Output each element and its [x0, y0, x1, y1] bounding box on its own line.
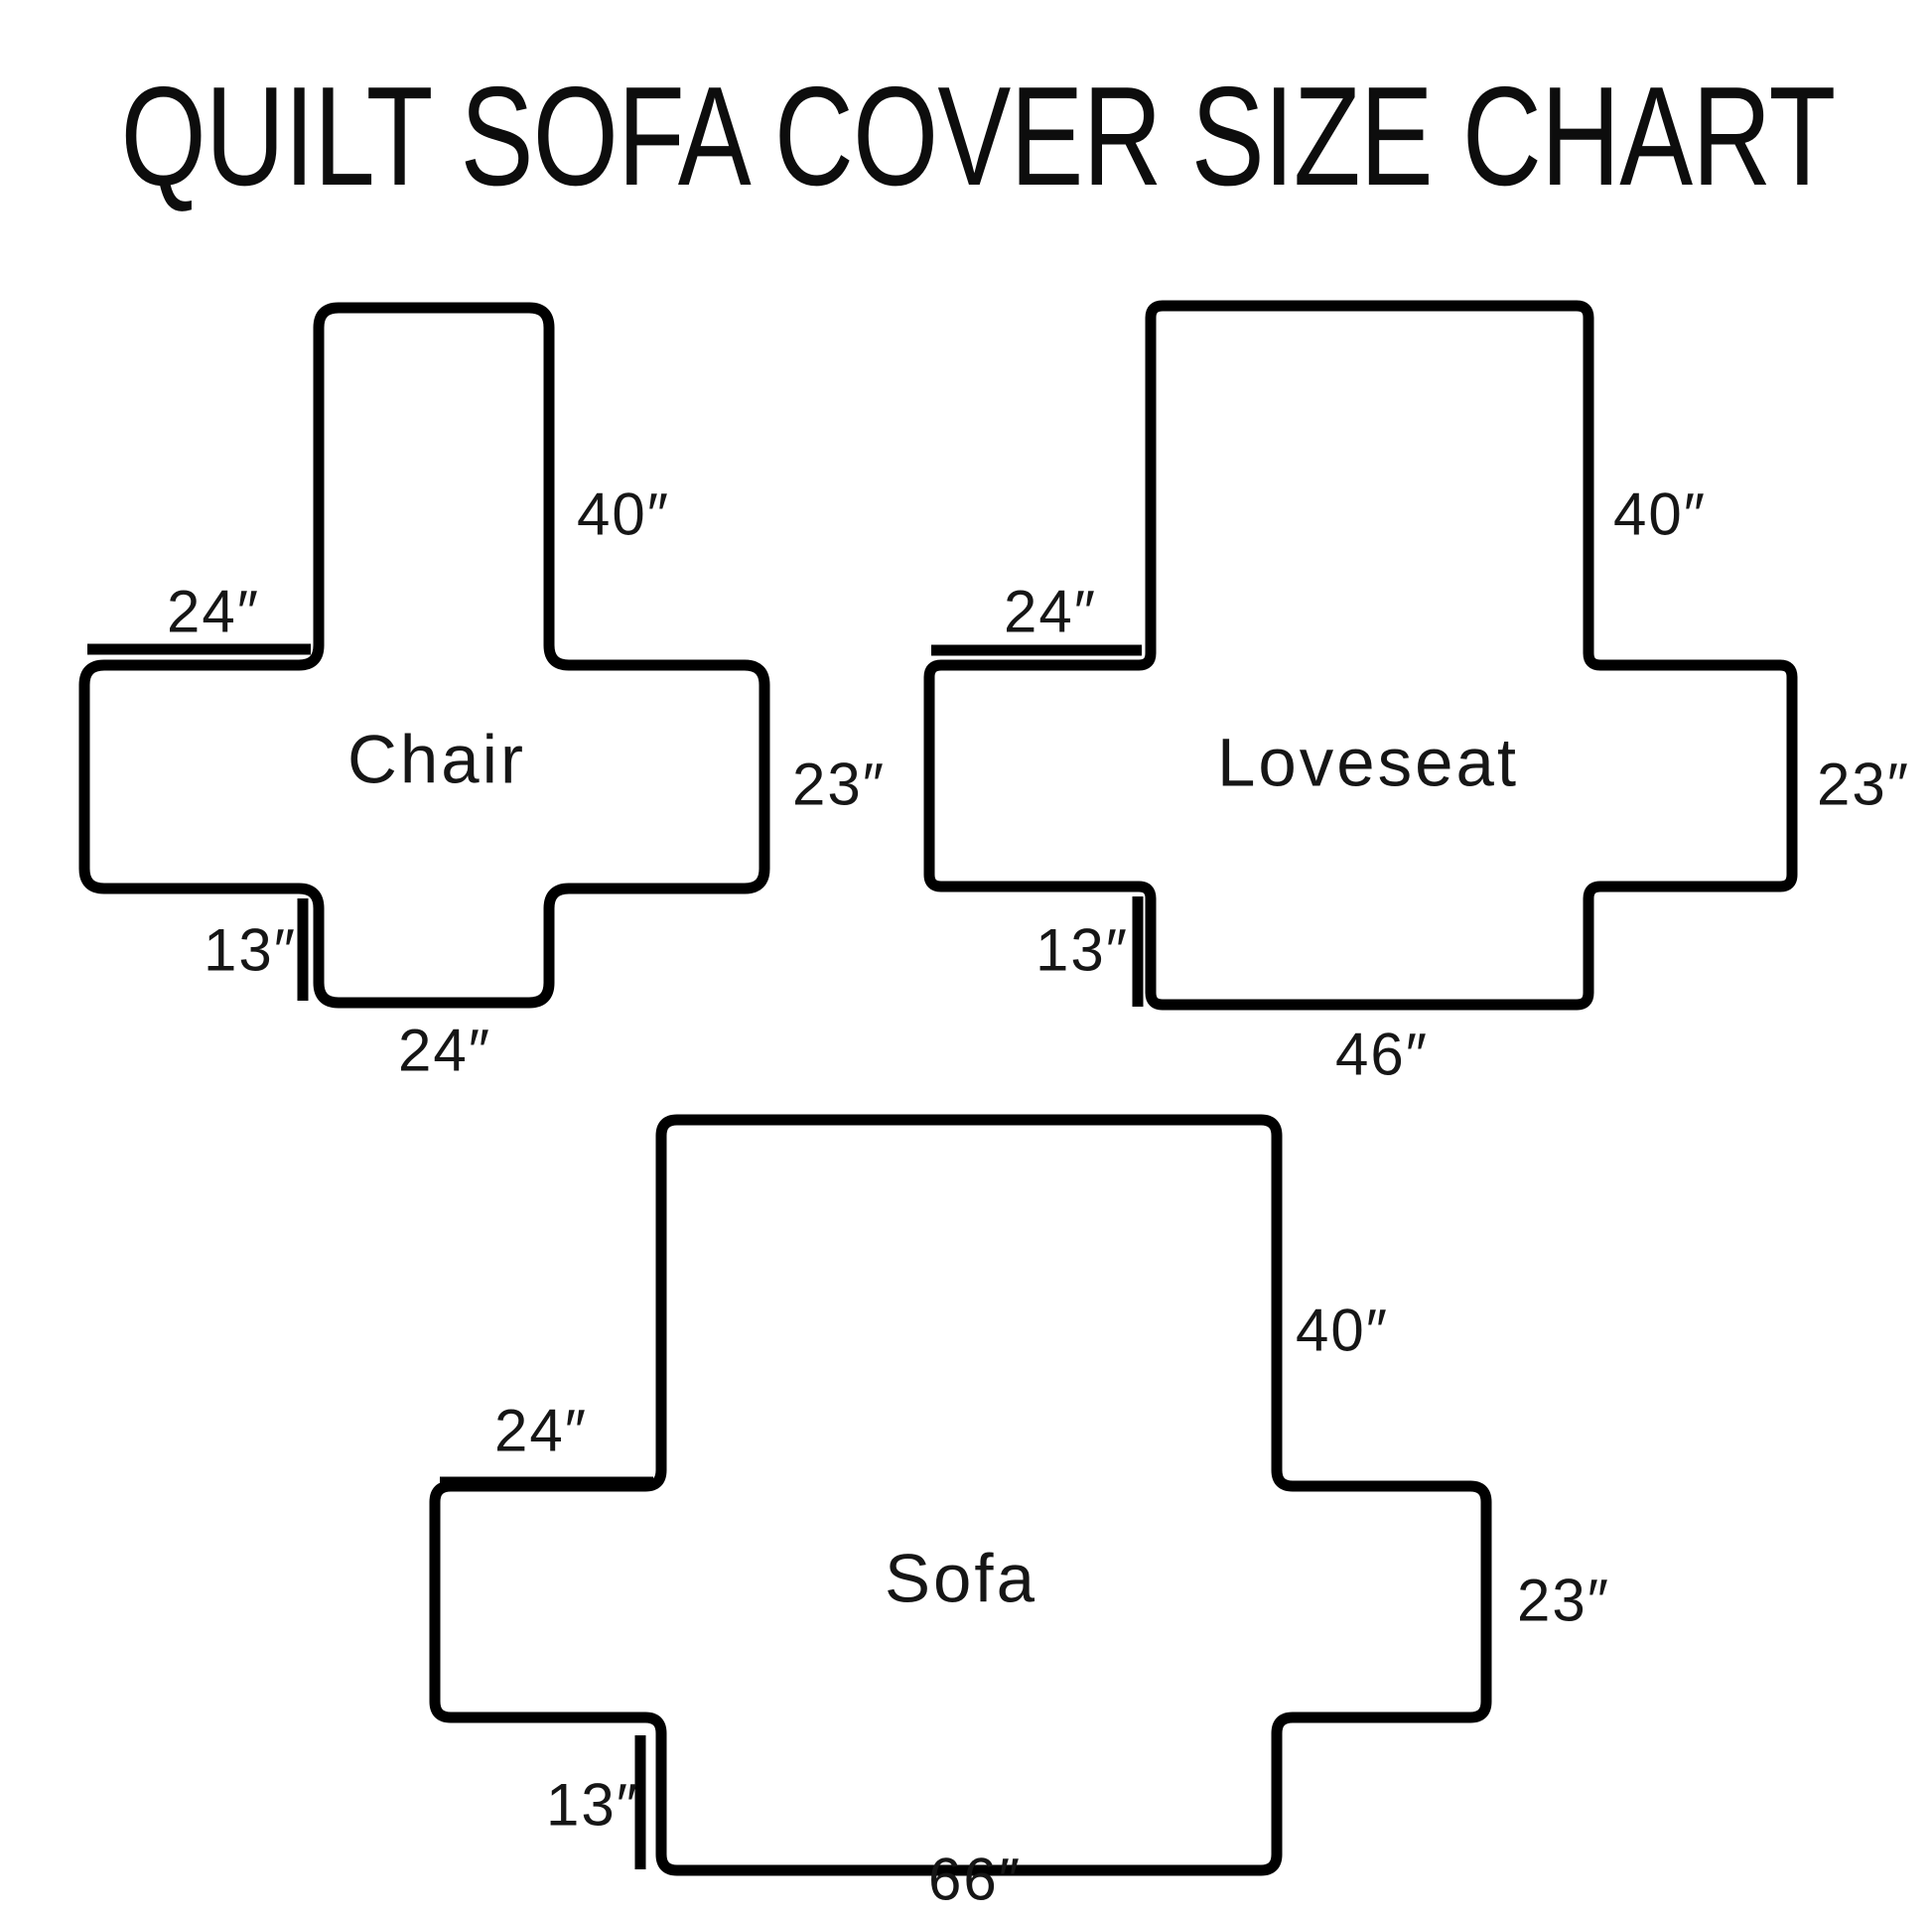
size-chart-page: QUILT SOFA COVER SIZE CHART 40″ 24″ Chai… — [0, 0, 1932, 1918]
chair-front-drop-label: 13″ — [204, 916, 297, 985]
sofa-name-label: Sofa — [885, 1540, 1037, 1618]
loveseat-name-label: Loveseat — [1217, 724, 1519, 802]
loveseat-front-drop-label: 13″ — [1035, 916, 1129, 985]
sofa-arm-length-label: 24″ — [494, 1397, 588, 1465]
loveseat-bottom-width-label: 46″ — [1335, 1021, 1429, 1089]
chair-back-height-label: 40″ — [577, 480, 670, 549]
chair-side-height-label: 23″ — [792, 751, 886, 819]
chair-arm-length-label: 24″ — [167, 578, 260, 646]
chair-name-label: Chair — [347, 721, 526, 799]
loveseat-side-height-label: 23″ — [1817, 751, 1910, 819]
loveseat-back-height-label: 40″ — [1613, 480, 1707, 549]
chair-bottom-width-label: 24″ — [398, 1017, 491, 1085]
chair-outline — [84, 308, 764, 1003]
loveseat-arm-length-label: 24″ — [1004, 578, 1097, 646]
sofa-side-height-label: 23″ — [1517, 1567, 1610, 1635]
sofa-bottom-width-label: 66″ — [928, 1846, 1022, 1914]
sofa-front-drop-label: 13″ — [546, 1771, 639, 1840]
sofa-back-height-label: 40″ — [1296, 1297, 1389, 1365]
sofa-outline — [435, 1120, 1486, 1870]
